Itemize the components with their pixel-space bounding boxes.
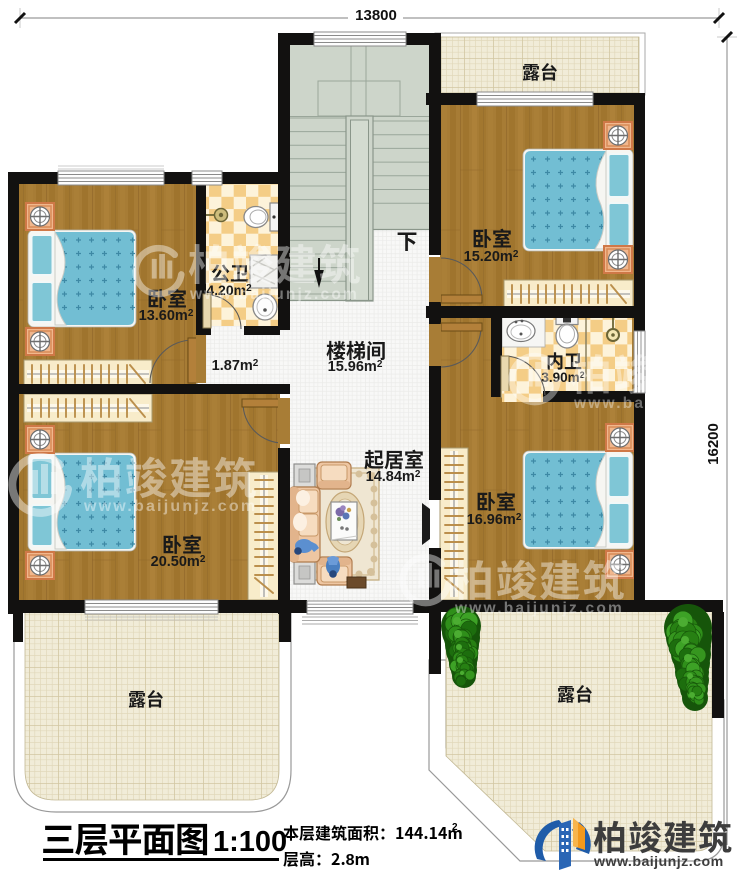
svg-text:www.baijunjz.com: www.baijunjz.com <box>593 854 724 870</box>
svg-text:露台: 露台 <box>128 686 164 712</box>
svg-text:20.50m2: 20.50m2 <box>151 554 206 570</box>
svg-text:16200: 16200 <box>705 423 722 465</box>
svg-text:2: 2 <box>452 822 458 833</box>
svg-text:www.baijunjz.com: www.baijunjz.com <box>573 395 743 412</box>
svg-text:柏竣建筑: 柏竣建筑 <box>570 342 744 403</box>
svg-text:www.baijunjz.com: www.baijunjz.com <box>454 600 624 617</box>
svg-text:15.96m2: 15.96m2 <box>328 359 383 375</box>
svg-text:1.87m2: 1.87m2 <box>212 358 259 374</box>
svg-text:露台: 露台 <box>522 59 558 85</box>
svg-text:层高：2.8m: 层高：2.8m <box>283 846 370 870</box>
svg-text:1:100: 1:100 <box>213 826 287 858</box>
svg-text:本层建筑面积：144.14m: 本层建筑面积：144.14m <box>283 820 463 844</box>
svg-text:卧室: 卧室 <box>476 486 516 515</box>
svg-text:柏竣建筑: 柏竣建筑 <box>593 811 733 860</box>
svg-text:三层平面图: 三层平面图 <box>41 812 209 862</box>
svg-text:15.20m2: 15.20m2 <box>464 249 519 265</box>
svg-text:16.96m2: 16.96m2 <box>467 512 522 528</box>
svg-text:露台: 露台 <box>557 681 593 707</box>
svg-text:卧室: 卧室 <box>472 223 512 252</box>
svg-text:下: 下 <box>397 226 418 256</box>
svg-text:www.baijunjz.com: www.baijunjz.com <box>189 286 359 303</box>
svg-text:14.84m2: 14.84m2 <box>366 469 421 485</box>
svg-text:柏竣建筑: 柏竣建筑 <box>188 232 362 293</box>
svg-text:www.baijunjz.com: www.baijunjz.com <box>83 498 257 515</box>
svg-text:13800: 13800 <box>355 7 397 24</box>
svg-text:13.60m2: 13.60m2 <box>139 308 194 324</box>
